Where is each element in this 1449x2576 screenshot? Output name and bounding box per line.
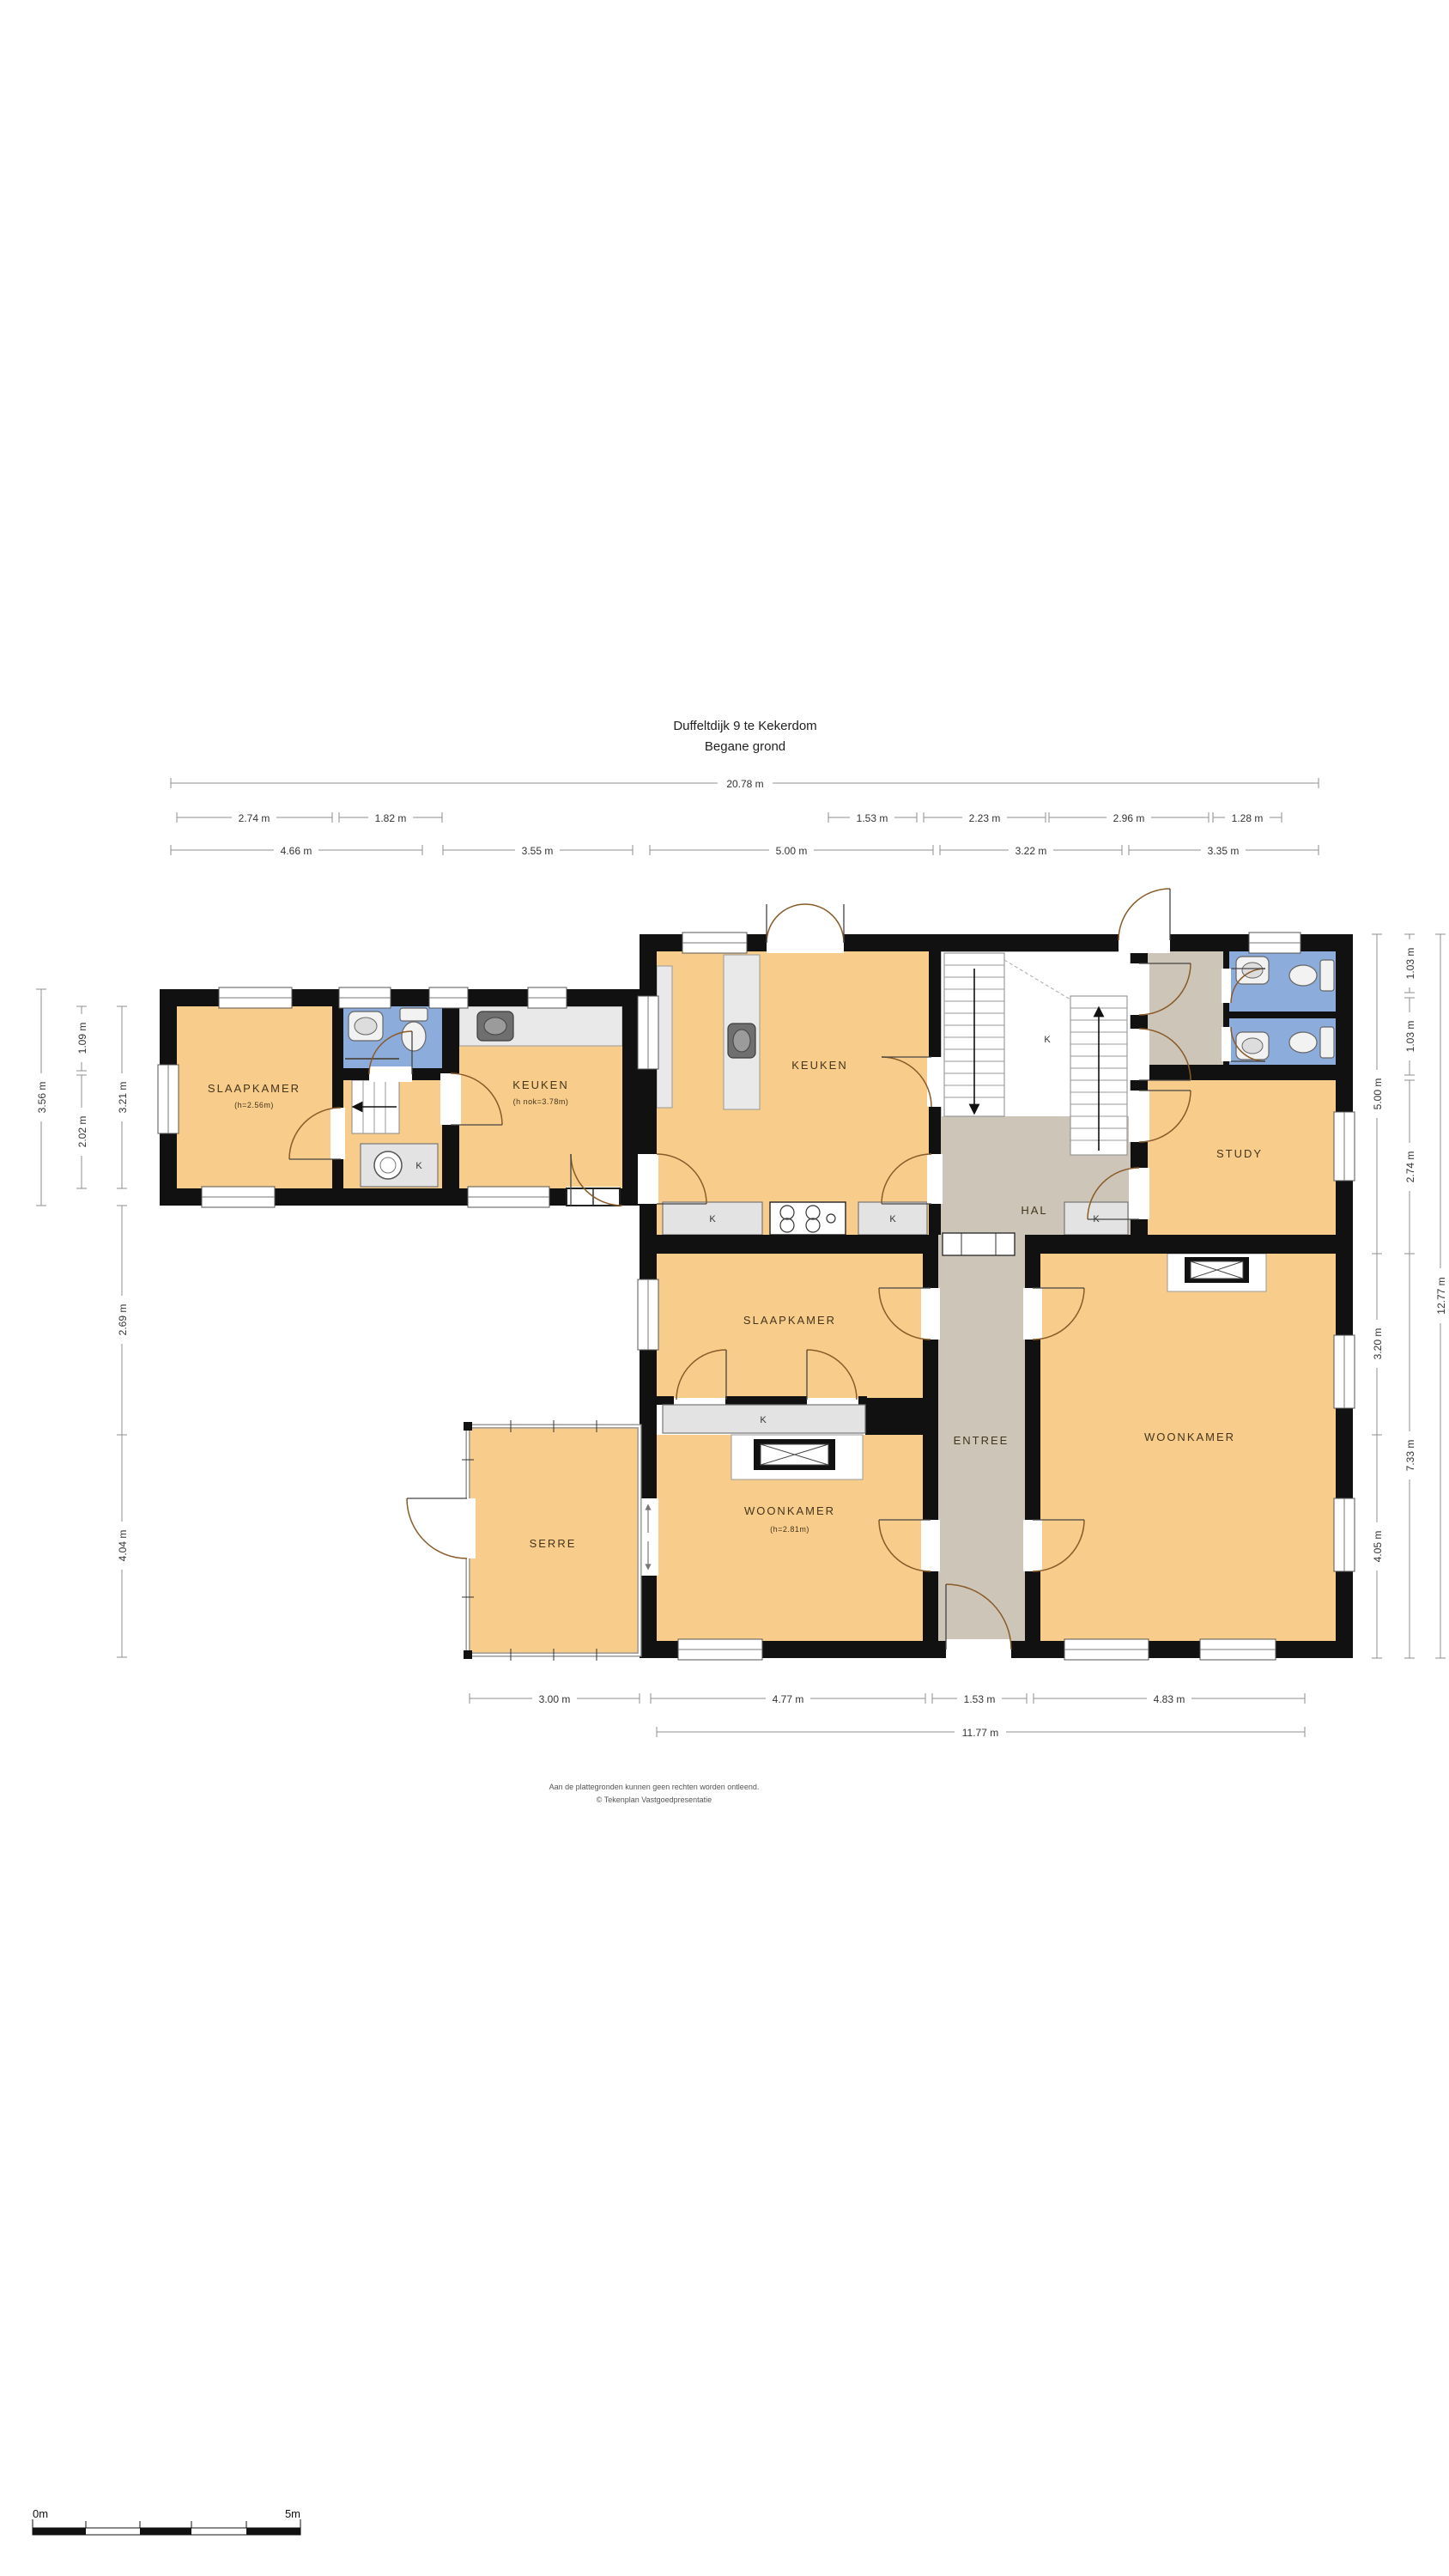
- footer: Aan de plattegronden kunnen geen rechten…: [549, 1783, 760, 1804]
- stairs-up: [1070, 996, 1127, 1155]
- title-line1: Duffeltdijk 9 te Kekerdom: [673, 719, 816, 733]
- svg-text:2.74 m: 2.74 m: [1404, 1151, 1416, 1183]
- dim-top-overall: 20.78 m: [171, 776, 1319, 790]
- window: [678, 1639, 762, 1660]
- window: [1064, 1639, 1149, 1660]
- window: [528, 987, 567, 1008]
- svg-text:2.23 m: 2.23 m: [969, 812, 1001, 824]
- label-slaapkamer-west: SLAAPKAMER: [208, 1082, 300, 1095]
- west-steps: [352, 1080, 399, 1133]
- svg-text:2.69 m: 2.69 m: [117, 1304, 129, 1336]
- dim-bottom-overall: 11.77 m: [657, 1725, 1305, 1739]
- label-slaapkamer: SLAAPKAMER: [743, 1314, 836, 1327]
- dim-top-row3: 4.66 m 3.55 m 5.00 m 3.22 m 3.35 m: [171, 843, 1319, 857]
- svg-text:3.20 m: 3.20 m: [1372, 1328, 1384, 1360]
- window: [1334, 1498, 1355, 1571]
- floorplan-drawing: Duffeltdijk 9 te Kekerdom Begane grond: [0, 0, 1449, 2576]
- scale-bar: 0m 5m: [33, 2507, 300, 2535]
- toilet-bath2-tank: [1320, 1027, 1334, 1058]
- svg-text:4.66 m: 4.66 m: [281, 845, 312, 857]
- label-entree: ENTREE: [954, 1434, 1009, 1447]
- dim-right-overall: 12.77 m: [1434, 934, 1447, 1658]
- room-keuken: [657, 951, 929, 1235]
- window: [1200, 1639, 1276, 1660]
- fireplace-woonkamer-right: [1167, 1254, 1266, 1291]
- svg-text:2.74 m: 2.74 m: [239, 812, 270, 824]
- room-woonkamer-right: [1040, 1254, 1336, 1641]
- svg-text:1.09 m: 1.09 m: [76, 1023, 88, 1054]
- svg-text:20.78 m: 20.78 m: [726, 778, 763, 790]
- svg-text:2.02 m: 2.02 m: [76, 1116, 88, 1148]
- svg-text:12.77 m: 12.77 m: [1435, 1277, 1447, 1314]
- svg-text:3.55 m: 3.55 m: [522, 845, 554, 857]
- scale-end-label: 5m: [285, 2507, 300, 2520]
- svg-text:11.77 m: 11.77 m: [962, 1727, 998, 1739]
- svg-text:4.04 m: 4.04 m: [117, 1530, 129, 1562]
- window: [682, 933, 747, 953]
- stair-closet-label: K: [1044, 1035, 1051, 1045]
- entree-top-doorway: [943, 1233, 1015, 1255]
- closet-label: K: [760, 1415, 767, 1425]
- floorplan-page: Duffeltdijk 9 te Kekerdom Begane grond: [0, 0, 1449, 2576]
- dim-left-inner: 3.21 m 2.69 m 4.04 m: [115, 1006, 129, 1657]
- dim-right-inner: 5.00 m 3.20 m 4.05 m: [1370, 934, 1384, 1658]
- dim-left-mid: 1.09 m 2.02 m: [75, 1006, 88, 1188]
- page-title: Duffeltdijk 9 te Kekerdom Begane grond: [673, 719, 816, 754]
- svg-text:4.83 m: 4.83 m: [1154, 1693, 1185, 1705]
- label-keuken-west-sub: (h nok=3.78m): [513, 1097, 569, 1106]
- window: [1334, 1112, 1355, 1181]
- window: [429, 987, 468, 1008]
- toilet-bath1-bowl: [1289, 965, 1317, 986]
- svg-text:3.56 m: 3.56 m: [36, 1082, 48, 1114]
- svg-text:3.21 m: 3.21 m: [117, 1082, 129, 1114]
- dim-top-row2: 2.74 m 1.82 m 1.53 m 2.23 m 2.96 m 1.28 …: [177, 811, 1282, 824]
- svg-text:4.77 m: 4.77 m: [773, 1693, 804, 1705]
- window: [1249, 933, 1300, 953]
- label-keuken-west: KEUKEN: [512, 1078, 568, 1091]
- closet-label: K: [889, 1214, 896, 1224]
- dim-right-mid: 1.03 m 1.03 m 2.74 m 7.33 m: [1403, 934, 1416, 1658]
- svg-text:1.53 m: 1.53 m: [857, 812, 888, 824]
- title-line2: Begane grond: [705, 739, 785, 754]
- hal-corridor: [1148, 951, 1223, 1065]
- window: [339, 987, 391, 1008]
- svg-text:7.33 m: 7.33 m: [1404, 1440, 1416, 1472]
- window: [468, 1187, 549, 1207]
- window: [158, 1065, 179, 1133]
- window: [1334, 1335, 1355, 1408]
- closet-label: K: [709, 1214, 716, 1224]
- label-woonkamer-left-sub: (h=2.81m): [770, 1525, 809, 1534]
- toilet-bath1-tank: [1320, 960, 1334, 991]
- kitchen-counter-left: [657, 966, 672, 1108]
- svg-text:1.82 m: 1.82 m: [375, 812, 407, 824]
- label-woonkamer-left: WOONKAMER: [744, 1504, 835, 1517]
- footer-line1: Aan de plattegronden kunnen geen rechten…: [549, 1783, 760, 1791]
- washing-machine: [374, 1151, 402, 1179]
- svg-text:4.05 m: 4.05 m: [1372, 1531, 1384, 1563]
- closet-strip-mid: K: [657, 1396, 923, 1435]
- label-keuken: KEUKEN: [791, 1059, 847, 1072]
- label-hal: HAL: [1021, 1204, 1047, 1217]
- label-study: STUDY: [1216, 1147, 1263, 1160]
- stairwell: K: [941, 951, 1131, 1235]
- svg-text:2.96 m: 2.96 m: [1113, 812, 1145, 824]
- closet-label: K: [415, 1161, 422, 1171]
- label-serre: SERRE: [530, 1537, 577, 1550]
- fireplace-woonkamer-left: [731, 1435, 863, 1479]
- svg-text:5.00 m: 5.00 m: [776, 845, 808, 857]
- svg-text:1.53 m: 1.53 m: [964, 1693, 996, 1705]
- window: [638, 996, 658, 1069]
- label-woonkamer-right: WOONKAMER: [1144, 1431, 1235, 1443]
- svg-text:3.22 m: 3.22 m: [1016, 845, 1047, 857]
- svg-text:1.03 m: 1.03 m: [1404, 948, 1416, 980]
- toilet-west-bowl: [402, 1022, 426, 1051]
- window: [219, 987, 292, 1008]
- stairs-down: [944, 953, 1004, 1116]
- dim-bottom-row1: 3.00 m 4.77 m 1.53 m 4.83 m: [470, 1692, 1305, 1705]
- dim-left-outer: 3.56 m: [34, 989, 48, 1206]
- toilet-bath2-bowl: [1289, 1032, 1317, 1053]
- svg-text:5.00 m: 5.00 m: [1372, 1078, 1384, 1110]
- scale-start-label: 0m: [33, 2507, 48, 2520]
- footer-line2: © Tekenplan Vastgoedpresentatie: [597, 1795, 712, 1804]
- label-slaapkamer-west-sub: (h=2.56m): [234, 1101, 274, 1109]
- window: [202, 1187, 275, 1207]
- window: [638, 1279, 658, 1350]
- toilet-west-tank: [400, 1008, 427, 1021]
- svg-text:1.28 m: 1.28 m: [1232, 812, 1264, 824]
- svg-text:1.03 m: 1.03 m: [1404, 1021, 1416, 1053]
- svg-text:3.35 m: 3.35 m: [1208, 845, 1240, 857]
- svg-text:3.00 m: 3.00 m: [539, 1693, 571, 1705]
